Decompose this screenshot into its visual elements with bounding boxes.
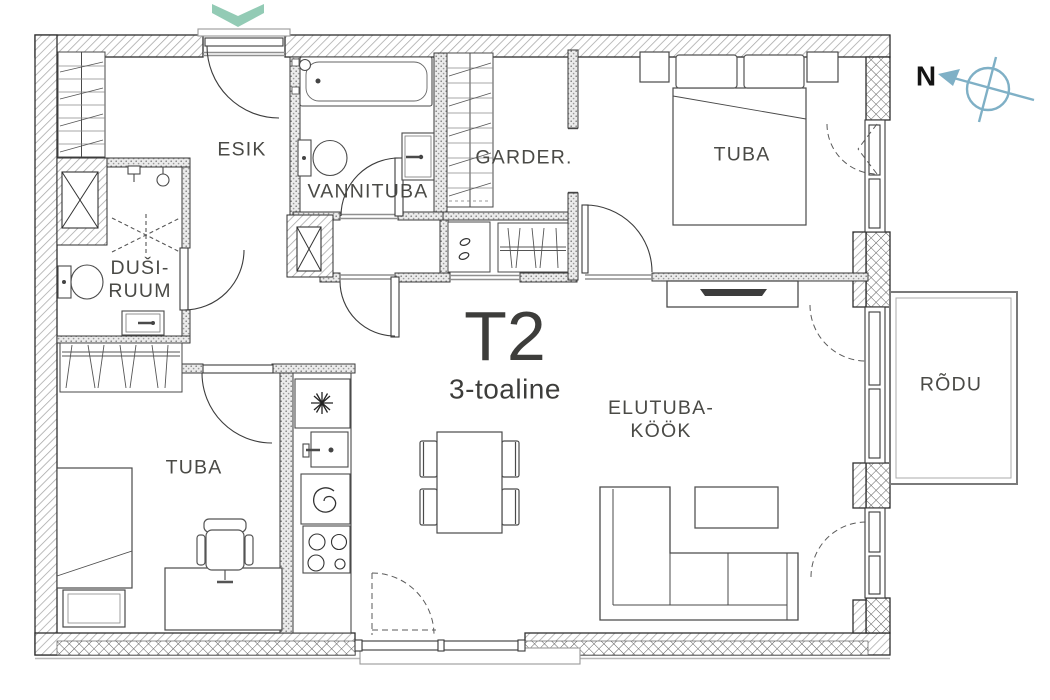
toilet-bowl	[71, 265, 103, 299]
shower-room-door-arc	[184, 250, 244, 310]
entry-sill	[198, 29, 290, 36]
compass-arrowhead	[938, 69, 960, 86]
dining-chair	[502, 489, 519, 525]
entry-door-arc	[207, 46, 279, 118]
balcony-outline	[890, 292, 1017, 484]
hall-door-arc	[340, 281, 395, 336]
dining-chair	[420, 489, 437, 525]
desk	[165, 568, 282, 630]
tv-icon	[700, 289, 767, 296]
toilet-bowl	[313, 141, 347, 176]
cooktop	[303, 526, 350, 573]
bathroom-door-arc	[341, 158, 399, 216]
pillow	[676, 55, 737, 88]
shower-room-door-leaf	[180, 248, 188, 310]
dining-chair	[502, 441, 519, 477]
entry-closet	[58, 52, 105, 157]
bedroom2-door-arc	[202, 373, 272, 443]
nightstand	[807, 52, 838, 82]
niche-washer	[448, 222, 490, 272]
kitchen-units	[293, 373, 351, 633]
dining-set	[420, 432, 519, 533]
dining-table	[437, 432, 502, 533]
compass-needle-icon	[938, 57, 1034, 122]
bathroom-fixtures	[292, 57, 434, 180]
windows-right	[865, 120, 885, 598]
bedroom1-door-leaf	[582, 205, 588, 273]
hall-wardrobe	[60, 343, 182, 392]
pillow	[744, 55, 804, 88]
shower-icon	[112, 214, 180, 256]
dining-chair	[420, 441, 437, 477]
floor-plan-drawing	[0, 0, 1050, 700]
nightstand	[640, 52, 669, 82]
garder-shelving	[447, 53, 493, 207]
hall-door-leaf	[391, 277, 399, 337]
shower-head	[157, 174, 169, 186]
entry-door-leaf	[205, 38, 283, 46]
oven	[301, 474, 350, 524]
bedroom2-door-leaf	[203, 365, 273, 373]
single-bed	[57, 468, 132, 588]
bedroom1-furniture	[640, 52, 838, 225]
chevron-down-icon	[212, 4, 264, 27]
living-room-furniture	[600, 281, 798, 620]
bedroom1-door-arc	[585, 205, 652, 272]
tub-faucet	[300, 60, 311, 71]
niche-closet	[498, 223, 568, 272]
coffee-table	[695, 487, 778, 528]
double-bed	[673, 88, 806, 225]
bedroom2-furniture	[57, 468, 282, 630]
floor-plan: ESIK VANNITUBA GARDER. TUBA DUŠI- RUUM T…	[0, 0, 1050, 700]
